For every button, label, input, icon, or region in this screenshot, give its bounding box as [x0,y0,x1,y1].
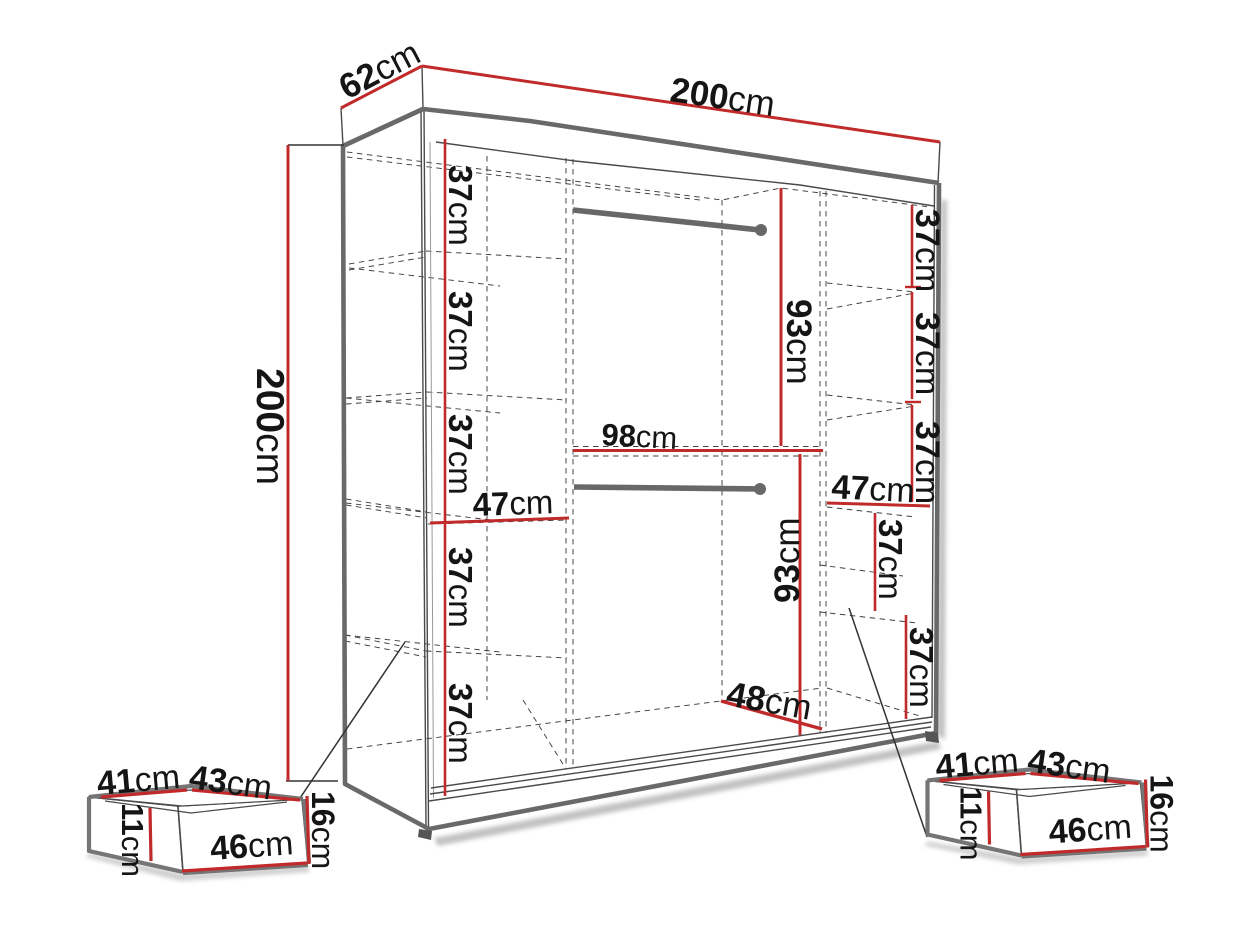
svg-text:37cm: 37cm [908,209,946,292]
svg-text:47cm: 47cm [472,483,554,523]
svg-text:37cm: 37cm [442,414,479,495]
svg-text:98cm: 98cm [601,417,679,456]
svg-text:11cm: 11cm [115,803,150,877]
svg-text:37cm: 37cm [908,421,946,504]
svg-text:93cm: 93cm [768,517,807,603]
svg-text:37cm: 37cm [442,683,479,764]
svg-text:37cm: 37cm [908,312,946,395]
svg-text:37cm: 37cm [442,547,479,628]
svg-text:46cm: 46cm [209,824,295,868]
svg-text:37cm: 37cm [903,627,940,708]
svg-text:200cm: 200cm [248,368,291,485]
svg-text:47cm: 47cm [831,468,916,510]
svg-text:37cm: 37cm [872,519,909,600]
svg-text:16cm: 16cm [305,791,341,869]
svg-text:37cm: 37cm [442,291,479,372]
svg-text:37cm: 37cm [442,165,479,246]
svg-text:93cm: 93cm [779,299,818,385]
svg-text:41cm: 41cm [95,758,181,803]
